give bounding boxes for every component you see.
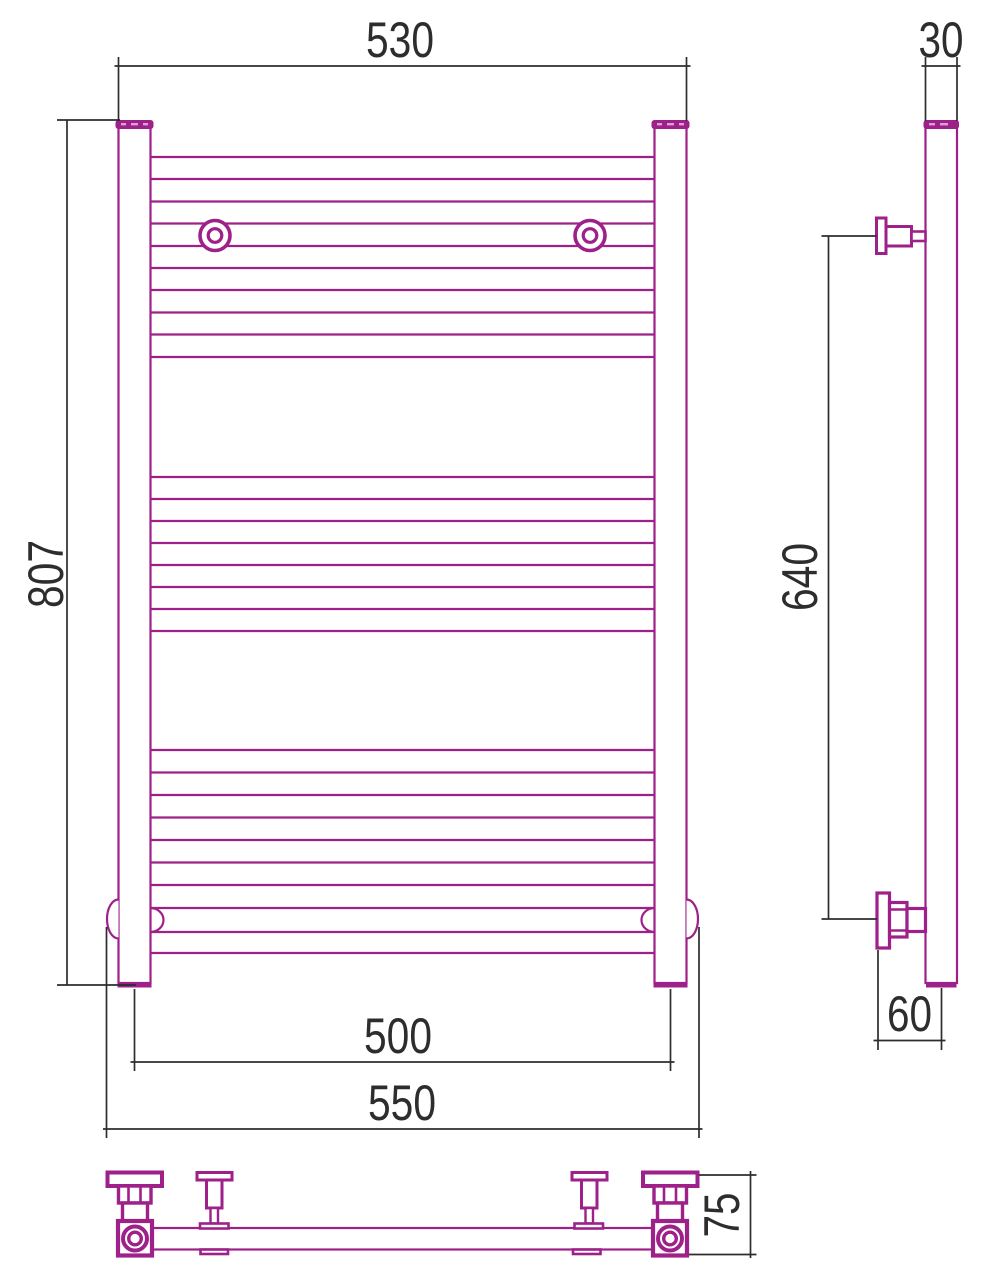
wall-bracket-top	[877, 218, 926, 254]
pipe-bend-arc-left	[107, 900, 119, 939]
bracket-cylinder	[907, 909, 926, 932]
dim-bracket-span: 640	[772, 236, 877, 919]
rail-top-cap-right	[652, 120, 690, 129]
corner-valve-right	[643, 1173, 698, 1256]
side-profile-bar	[926, 122, 958, 983]
bottom-view	[108, 1173, 698, 1256]
dim-overall-width-label: 550	[368, 1075, 436, 1131]
mounting-bracket-right-icon	[575, 221, 605, 251]
bracket-flange	[877, 893, 890, 948]
side-top-cap	[924, 120, 960, 129]
rail-bottom-cap-right	[654, 983, 688, 988]
front-view	[107, 120, 698, 988]
dim-wall-offset-label: 60	[887, 986, 932, 1042]
right-rail	[655, 122, 687, 983]
side-view	[877, 120, 960, 988]
collector-tube-plan	[152, 1228, 653, 1250]
pipe-bend-arc-right	[687, 900, 699, 939]
dim-profile-depth: 30	[919, 12, 964, 121]
rail-top-cap-left	[116, 120, 154, 129]
technical-drawing-canvas: 530 807 500 550 30 640 60	[0, 0, 985, 1280]
collector-tube-end-dome-right	[642, 908, 655, 932]
collector-tube-end-dome-left	[151, 908, 164, 932]
left-rail	[119, 122, 151, 983]
bracket-hex-nut	[890, 903, 908, 938]
dim-front-height-label: 807	[18, 540, 74, 608]
collector-tube	[150, 908, 655, 932]
bracket-cylinder	[886, 227, 912, 247]
mounting-bracket-left-icon	[200, 221, 230, 251]
corner-valve-left	[108, 1173, 163, 1256]
dim-rail-pitch: 500	[131, 989, 675, 1071]
dim-front-width: 530	[115, 12, 691, 121]
dim-bottom-depth-label: 75	[694, 1193, 750, 1238]
technical-drawing-page: 530 807 500 550 30 640 60	[0, 0, 985, 1280]
dim-front-width-label: 530	[366, 12, 434, 68]
rung-lines	[150, 157, 655, 953]
bracket-stem	[912, 232, 926, 242]
wall-bracket-bottom	[877, 893, 926, 948]
dim-rail-pitch-label: 500	[364, 1008, 432, 1064]
dim-profile-depth-label: 30	[919, 12, 964, 68]
dim-bracket-span-label: 640	[772, 543, 828, 611]
